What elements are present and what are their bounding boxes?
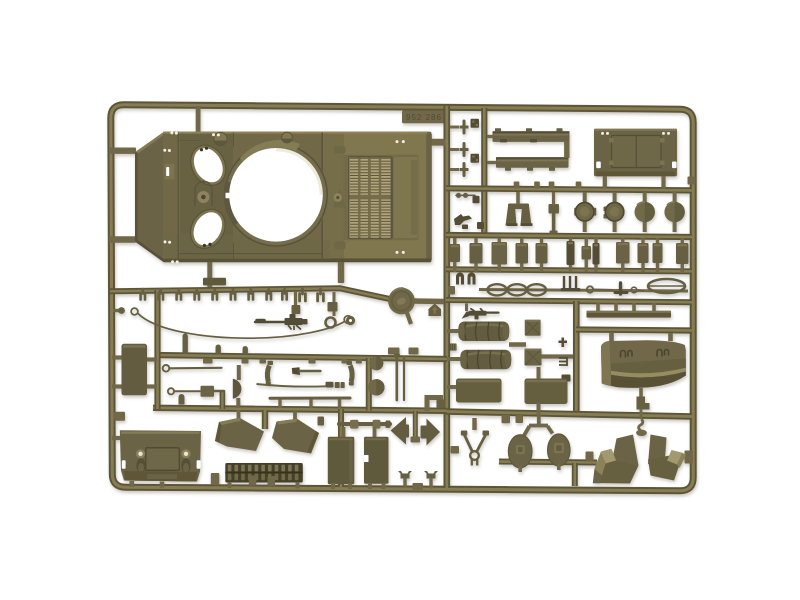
svg-text:952 286: 952 286 — [406, 113, 442, 122]
